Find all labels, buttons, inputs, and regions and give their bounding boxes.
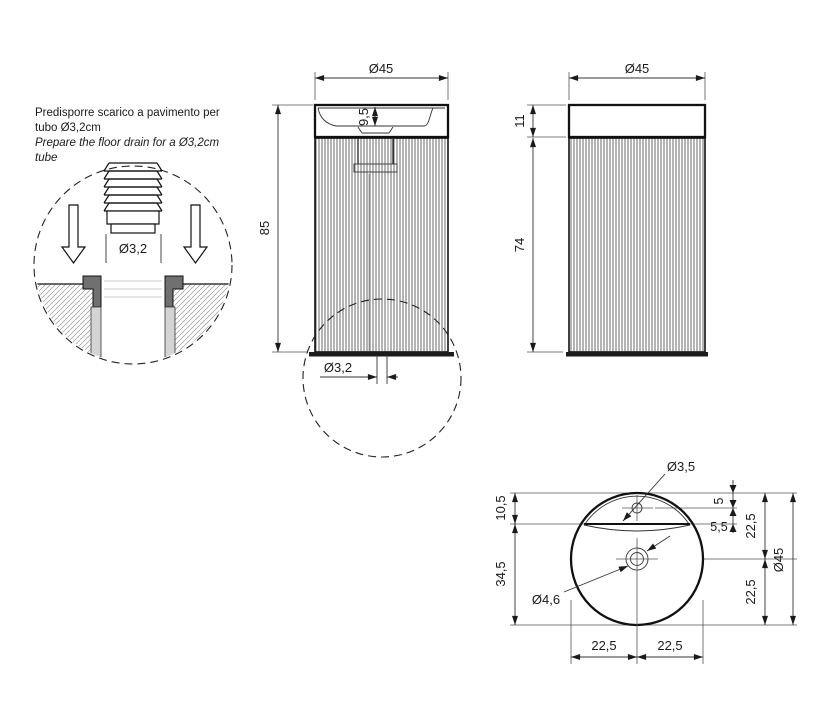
side-view: Ø45 11 74 [512,61,708,357]
top-rim-to-slot-label: 10,5 [493,495,508,520]
detail-boundary-circle [34,166,232,364]
drain-pipe-wall-left [91,307,101,357]
front-width-label: Ø45 [369,61,394,76]
note-text-block: Predisporre scarico a pavimento per tubo… [35,107,220,164]
side-width-label: Ø45 [625,61,650,76]
front-height-label: 85 [257,221,272,235]
side-pedestal-height-label: 74 [512,238,527,252]
down-arrow-left [62,205,85,263]
note-line-2: tubo Ø3,2cm [35,122,101,134]
top-edge-to-tap-label: 5 [712,497,726,504]
detail-drain-dia-label: Ø3,2 [119,241,147,256]
front-bowl-profile [318,108,433,126]
top-half-right-label: 22,5 [657,638,682,653]
top-bowl-back-edge [584,525,690,531]
note-line-4: tube [35,152,57,164]
top-drain-hole-label: Ø4,6 [532,592,560,607]
technical-drawing-sheet: Predisporre scarico a pavimento per tubo… [0,0,833,711]
top-outer-dia-label: Ø45 [771,548,786,573]
drain-pipe-wall-right [165,307,175,357]
top-tap-hole-label: Ø3,5 [667,459,695,474]
front-view: Ø45 85 9,5 Ø3,2 [257,61,461,457]
front-basin-depth-label: 9,5 [356,108,371,126]
corrugated-tube [104,163,162,233]
side-base-plate [566,352,708,357]
side-fluted-pedestal [569,138,705,352]
top-half-left-label: 22,5 [591,638,616,653]
note-line-3: Prepare the floor drain for a Ø3,2cm [35,137,220,149]
floor-section [30,276,236,362]
front-floor-drain-label: Ø3,2 [324,360,352,375]
side-basin-rim [569,105,705,137]
side-rim-height-label: 11 [512,114,527,128]
note-line-1: Predisporre scarico a pavimento per [35,107,220,119]
top-radius-lower-label: 22,5 [743,579,758,604]
top-view: Ø3,5 Ø4,6 10,5 34,5 5 5,5 22,5 22,5 Ø45 [493,459,797,664]
top-radius-upper-label: 22,5 [743,513,758,538]
down-arrow-right [184,205,207,263]
front-base-plate [309,352,454,357]
front-bowl-drain [358,127,393,133]
top-slot-to-bottom-label: 34,5 [493,561,508,586]
front-fluted-pedestal [315,138,448,352]
top-tap-to-slot-label: 5,5 [710,520,727,534]
washbasin-dimension-drawing: Predisporre scarico a pavimento per tubo… [0,0,833,711]
floor-drain-detail-view: Ø3,2 [30,163,236,364]
